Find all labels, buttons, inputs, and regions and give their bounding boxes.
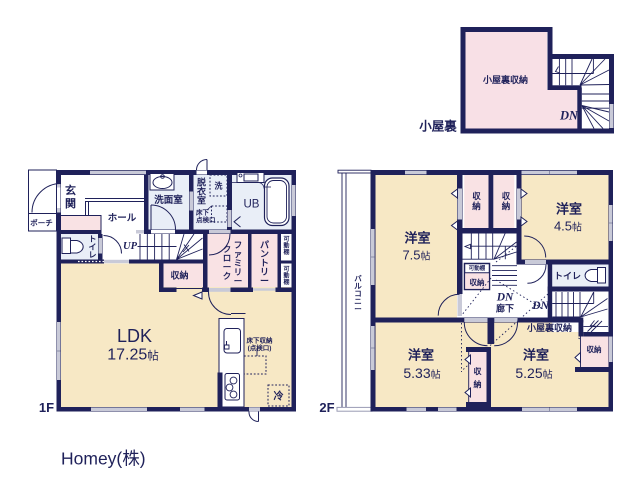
svg-text:収: 収 bbox=[472, 191, 481, 201]
svg-text:可: 可 bbox=[283, 266, 289, 273]
svg-text:小屋裏: 小屋裏 bbox=[418, 119, 457, 134]
svg-text:DN: DN bbox=[531, 300, 549, 312]
svg-text:冷: 冷 bbox=[274, 390, 284, 403]
svg-text:ー: ー bbox=[234, 276, 243, 286]
svg-text:室: 室 bbox=[197, 195, 206, 206]
svg-text:小屋裏収納: 小屋裏収納 bbox=[526, 322, 572, 333]
svg-text:玄: 玄 bbox=[65, 183, 76, 197]
svg-text:ポーチ: ポーチ bbox=[30, 218, 53, 228]
svg-text:床下: 床下 bbox=[196, 208, 210, 217]
svg-text:レ: レ bbox=[89, 251, 97, 260]
svg-text:Homey(株): Homey(株) bbox=[61, 449, 146, 469]
svg-text:UB: UB bbox=[244, 199, 260, 211]
svg-text:洋室: 洋室 bbox=[556, 202, 582, 217]
svg-text:DN: DN bbox=[496, 292, 514, 304]
svg-text:収納: 収納 bbox=[470, 277, 485, 287]
svg-text:洗: 洗 bbox=[215, 181, 223, 191]
svg-text:納: 納 bbox=[502, 201, 511, 211]
svg-text:可: 可 bbox=[283, 236, 289, 243]
svg-text:点検口: 点検口 bbox=[196, 215, 216, 224]
svg-text:トイレ: トイレ bbox=[554, 271, 581, 281]
svg-text:廊下: 廊下 bbox=[496, 303, 514, 314]
svg-text:洋室: 洋室 bbox=[408, 348, 434, 363]
svg-text:床下収納: 床下収納 bbox=[247, 336, 274, 345]
svg-text:動: 動 bbox=[283, 242, 289, 250]
svg-text:棚: 棚 bbox=[283, 278, 289, 286]
svg-text:ー: ー bbox=[260, 276, 269, 286]
svg-text:洋室: 洋室 bbox=[404, 231, 430, 246]
svg-text:洋室: 洋室 bbox=[523, 348, 549, 363]
svg-text:可動棚: 可動棚 bbox=[469, 264, 486, 272]
svg-text:収納: 収納 bbox=[170, 270, 188, 281]
svg-text:小屋裏収納: 小屋裏収納 bbox=[482, 74, 528, 85]
svg-text:DN: DN bbox=[559, 109, 579, 123]
svg-text:納: 納 bbox=[472, 201, 481, 211]
svg-text:ー: ー bbox=[354, 304, 362, 313]
svg-text:納: 納 bbox=[474, 379, 482, 389]
svg-text:収: 収 bbox=[474, 366, 483, 376]
svg-text:洗面室: 洗面室 bbox=[154, 194, 183, 206]
svg-text:収納: 収納 bbox=[587, 344, 602, 354]
svg-text:動: 動 bbox=[283, 272, 289, 280]
svg-text:ホール: ホール bbox=[108, 213, 137, 224]
svg-text:棚: 棚 bbox=[283, 248, 289, 256]
svg-text:ク: ク bbox=[223, 271, 232, 281]
svg-text:UP: UP bbox=[123, 241, 138, 252]
svg-text:2F: 2F bbox=[319, 400, 334, 415]
svg-text:(点検口): (点検口) bbox=[248, 343, 272, 352]
svg-text:収: 収 bbox=[502, 191, 511, 201]
svg-text:1F: 1F bbox=[39, 400, 54, 415]
svg-text:関: 関 bbox=[65, 197, 76, 210]
svg-text:LDK: LDK bbox=[117, 326, 152, 346]
